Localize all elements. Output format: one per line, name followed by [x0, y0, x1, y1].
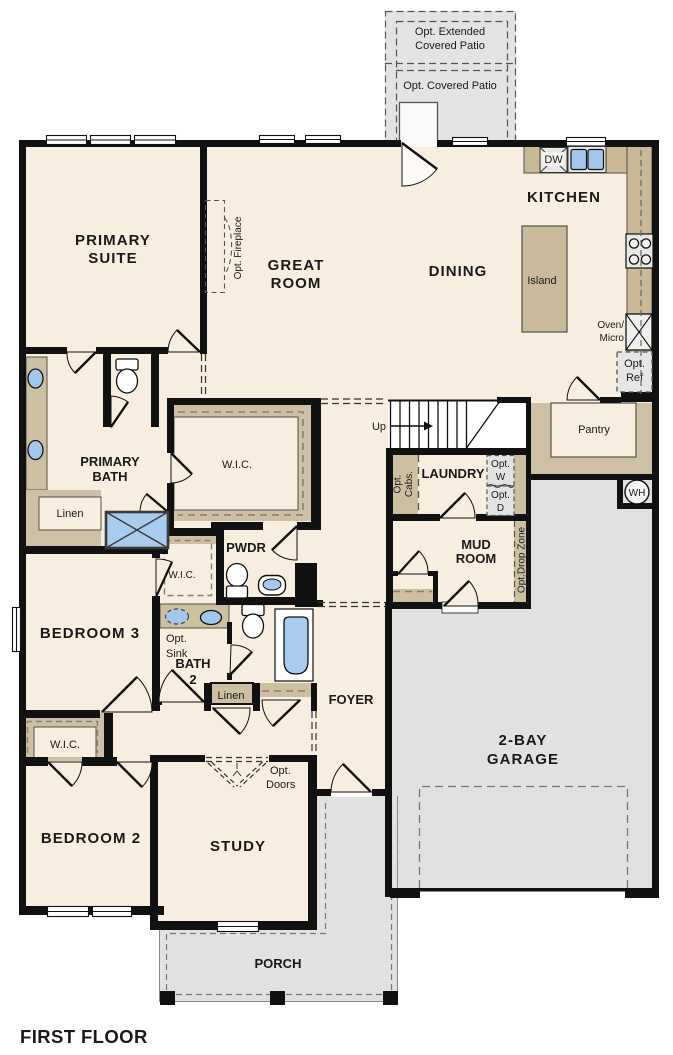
svg-text:FOYER: FOYER: [329, 692, 374, 707]
svg-text:SUITE: SUITE: [88, 250, 137, 267]
svg-text:Up: Up: [372, 421, 386, 433]
svg-text:Island: Island: [527, 275, 556, 287]
svg-text:Opt.: Opt.: [491, 490, 510, 501]
svg-text:PRIMARY: PRIMARY: [75, 232, 151, 249]
svg-text:2-BAY: 2-BAY: [499, 732, 548, 749]
svg-text:PRIMARY: PRIMARY: [80, 454, 140, 469]
svg-text:W: W: [496, 472, 506, 483]
svg-text:STUDY: STUDY: [210, 838, 266, 855]
svg-text:D: D: [497, 503, 504, 514]
svg-text:Pantry: Pantry: [578, 424, 610, 436]
svg-text:MUD: MUD: [461, 537, 491, 552]
svg-text:BEDROOM 2: BEDROOM 2: [41, 830, 141, 847]
svg-text:KITCHEN: KITCHEN: [527, 189, 601, 206]
svg-text:Linen: Linen: [57, 508, 84, 520]
svg-text:Opt. Extended: Opt. Extended: [415, 26, 485, 38]
svg-text:BATH: BATH: [92, 469, 127, 484]
svg-text:Doors: Doors: [266, 779, 296, 791]
svg-text:FIRST FLOOR: FIRST FLOOR: [20, 1026, 148, 1047]
svg-text:Opt. Covered Patio: Opt. Covered Patio: [403, 80, 497, 92]
svg-text:WH: WH: [629, 488, 646, 499]
svg-text:ROOM: ROOM: [271, 275, 322, 292]
svg-text:Micro: Micro: [600, 333, 625, 344]
svg-text:DINING: DINING: [429, 263, 488, 280]
svg-text:Opt.Drop Zone: Opt.Drop Zone: [517, 526, 528, 593]
svg-text:Opt.: Opt.: [624, 358, 645, 370]
svg-text:GARAGE: GARAGE: [487, 751, 559, 768]
svg-text:W.I.C.: W.I.C.: [168, 570, 195, 581]
svg-text:Opt.: Opt.: [491, 459, 510, 470]
svg-text:BATH: BATH: [175, 656, 210, 671]
svg-text:PWDR: PWDR: [226, 540, 266, 555]
svg-text:Linen: Linen: [218, 690, 245, 702]
svg-text:2: 2: [189, 672, 196, 687]
svg-text:ROOM: ROOM: [456, 551, 496, 566]
svg-text:W.I.C.: W.I.C.: [222, 459, 252, 471]
svg-text:GREAT: GREAT: [268, 257, 325, 274]
svg-text:PORCH: PORCH: [255, 956, 302, 971]
svg-text:Covered Patio: Covered Patio: [415, 40, 485, 52]
svg-text:BEDROOM 3: BEDROOM 3: [40, 625, 140, 642]
svg-text:DW: DW: [544, 154, 563, 166]
svg-text:Opt.: Opt.: [166, 633, 187, 645]
svg-text:Opt. Fireplace: Opt. Fireplace: [233, 216, 244, 279]
svg-text:Cabs.: Cabs.: [404, 471, 415, 497]
svg-text:Oven/: Oven/: [597, 320, 624, 331]
svg-text:LAUNDRY: LAUNDRY: [421, 466, 484, 481]
svg-text:Opt.: Opt.: [393, 475, 404, 494]
svg-text:Opt.: Opt.: [270, 765, 291, 777]
svg-text:W.I.C.: W.I.C.: [50, 739, 80, 751]
